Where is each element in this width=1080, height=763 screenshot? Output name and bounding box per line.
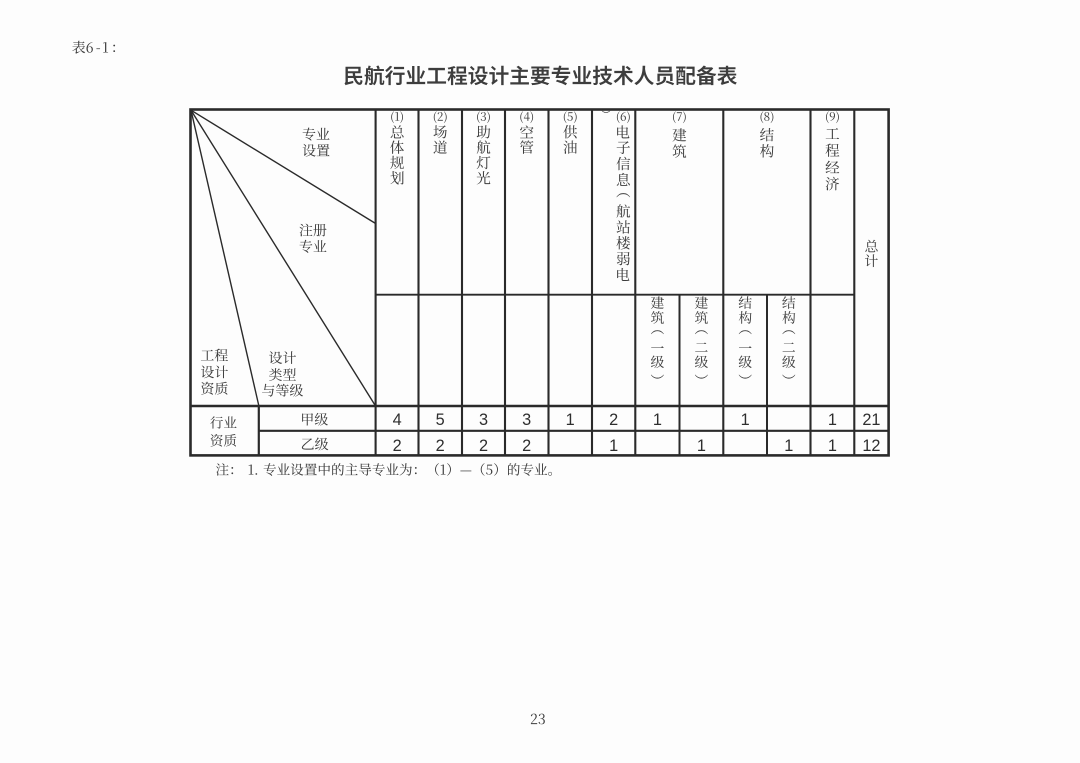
svg-text:1: 1 (741, 411, 750, 429)
svg-text:1: 1 (653, 411, 662, 429)
svg-text:2: 2 (479, 437, 488, 455)
svg-text:1: 1 (697, 437, 706, 455)
svg-text:1: 1 (784, 437, 793, 455)
svg-text:1: 1 (609, 437, 618, 455)
svg-text:3: 3 (522, 411, 531, 429)
svg-text:4: 4 (393, 411, 402, 429)
svg-text:1: 1 (566, 411, 575, 429)
svg-text:12: 12 (862, 437, 880, 455)
svg-text:2: 2 (393, 437, 402, 455)
svg-text:1: 1 (828, 437, 837, 455)
svg-text:3: 3 (479, 411, 488, 429)
svg-text:5: 5 (436, 411, 445, 429)
svg-text:2: 2 (522, 437, 531, 455)
svg-text:1: 1 (828, 411, 837, 429)
svg-text:21: 21 (862, 411, 880, 429)
svg-text:2: 2 (436, 437, 445, 455)
svg-text:2: 2 (609, 411, 618, 429)
